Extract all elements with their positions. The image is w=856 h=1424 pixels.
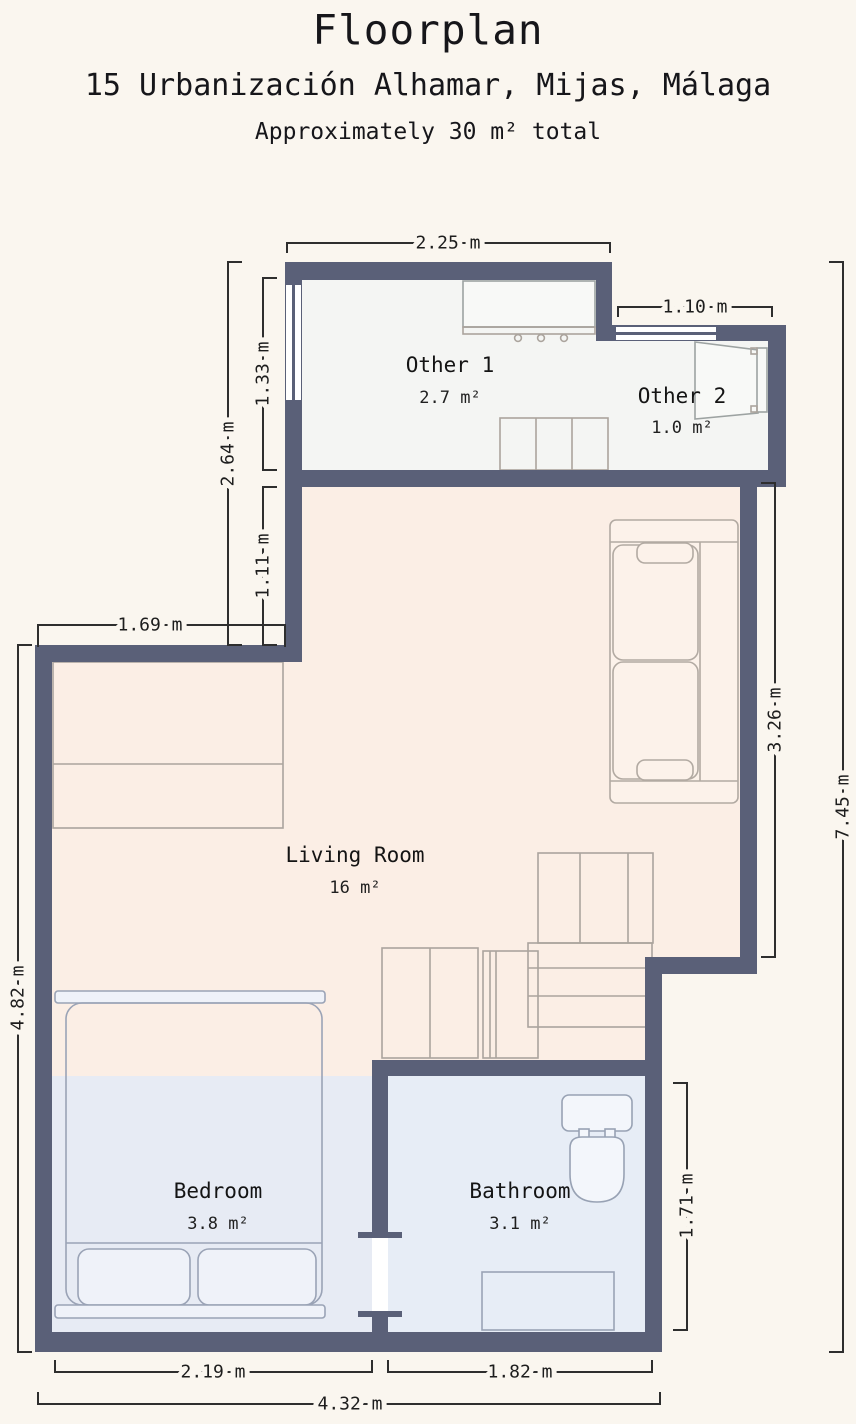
- other2-window: [616, 327, 716, 340]
- floorplan-page: { "header": { "title": "Floorplan", "add…: [0, 0, 856, 1424]
- dim-other1-window-side: 1.33 m: [253, 341, 274, 406]
- dim-living-left-height: 4.82 m: [8, 965, 29, 1030]
- sofa-pillow: [637, 760, 693, 780]
- wall-bathroom-right: [645, 957, 662, 1352]
- floorplan-drawing: 2.25 m 1.10 m 1.33 m 2.64 m 1.11 m 1.69 …: [0, 0, 856, 1424]
- room-label-living-room: Living Room: [285, 843, 424, 867]
- room-label-bedroom: Bedroom: [174, 1179, 263, 1203]
- dim-living-right-height: 3.26 m: [765, 687, 786, 752]
- dim-living-step-width: 1.69 m: [117, 615, 182, 636]
- dim-living-upper-left: 1.11 m: [253, 533, 274, 598]
- wall-living-step-top: [35, 645, 302, 662]
- bed-pillow: [198, 1249, 316, 1305]
- dim-upper-left-total: 2.64 m: [218, 421, 239, 486]
- wall-other2-right: [768, 325, 786, 487]
- dim-total-width: 4.32 m: [317, 1394, 382, 1415]
- room-area-living-room: 16 m²: [329, 878, 380, 898]
- dim-total-height: 7.45 m: [833, 774, 854, 839]
- room-area-bathroom: 3.1 m²: [489, 1214, 550, 1234]
- room-area-other1: 2.7 m²: [419, 388, 480, 408]
- bed-pillow: [78, 1249, 190, 1305]
- wall-bathroom-top: [372, 1060, 662, 1076]
- dim-other1-width: 2.25 m: [415, 233, 480, 254]
- bed-footboard: [55, 991, 325, 1003]
- wall-other1-top: [285, 262, 612, 280]
- wall-other1-other2-stub: [596, 280, 612, 341]
- room-area-other2: 1.0 m²: [651, 418, 712, 438]
- toilet: [562, 1095, 632, 1202]
- wall-bedroom-bathroom: [372, 1076, 388, 1232]
- wall-living-right: [740, 487, 757, 974]
- dim-bathroom-width: 1.82 m: [487, 1362, 552, 1383]
- room-label-other1: Other 1: [406, 353, 495, 377]
- wall-bottom: [35, 1332, 662, 1352]
- bathroom-door: [372, 1238, 388, 1311]
- room-area-bedroom: 3.8 m²: [187, 1214, 248, 1234]
- wall-outer-left: [35, 645, 52, 1352]
- bed-headboard: [55, 1305, 325, 1318]
- sofa: [610, 520, 738, 803]
- wall-bedroom-bathroom-stub: [372, 1317, 388, 1332]
- room-label-other2: Other 2: [638, 384, 727, 408]
- wall-living-top: [285, 470, 786, 487]
- dim-other2-width: 1.10 m: [662, 297, 727, 318]
- dim-bedroom-width: 2.19 m: [180, 1362, 245, 1383]
- dim-bathroom-height: 1.71 m: [677, 1173, 698, 1238]
- door-jamb: [358, 1311, 402, 1317]
- door-jamb: [358, 1232, 402, 1238]
- room-label-bathroom: Bathroom: [469, 1179, 570, 1203]
- sofa-pillow: [637, 543, 693, 563]
- other1-window: [286, 285, 301, 400]
